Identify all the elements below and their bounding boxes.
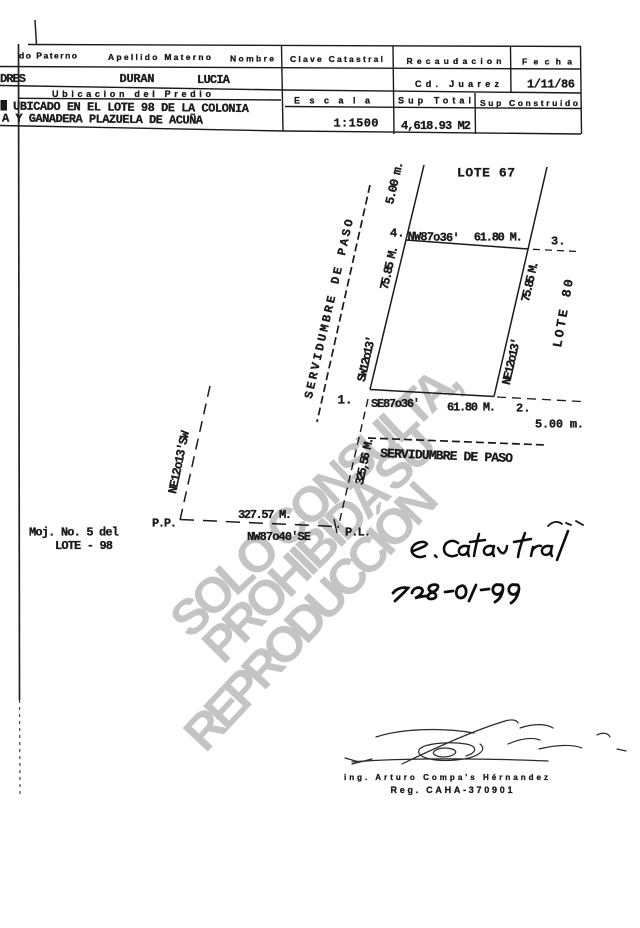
svg-text:Fecha: Fecha [522, 57, 572, 67]
svg-text:NE12o13': NE12o13' [500, 336, 524, 386]
svg-text:SERVIDUMBRE DE PASO: SERVIDUMBRE DE PASO [302, 217, 357, 400]
svg-text:5.00 m.: 5.00 m. [383, 160, 407, 206]
svg-text:do Paterno: do Paterno [19, 51, 77, 61]
svg-text:75.85 M.: 75.85 M. [519, 259, 542, 303]
svg-text:ing. Arturo Compa's Hérnandez: ing. Arturo Compa's Hérnandez [344, 773, 548, 782]
svg-text:1.: 1. [338, 394, 353, 408]
svg-text:Sup Construido: Sup Construido [480, 98, 578, 108]
svg-text:2.: 2. [516, 402, 530, 416]
svg-text:P.L.: P.L. [345, 526, 371, 540]
svg-text:Recaudacion: Recaudacion [407, 56, 502, 66]
svg-text:Sup Total: Sup Total [398, 96, 471, 106]
svg-text:SW12o13': SW12o13' [355, 334, 379, 383]
svg-text:1/11/86: 1/11/86 [527, 78, 575, 92]
svg-text:Clave Catastral: Clave Catastral [290, 54, 383, 64]
svg-text:DURAN: DURAN [120, 72, 155, 86]
svg-text:1:1500: 1:1500 [334, 117, 379, 131]
svg-text:3.: 3. [551, 235, 565, 249]
svg-text:SE87o36': SE87o36' [371, 397, 420, 411]
svg-text:DRES: DRES [0, 72, 26, 86]
svg-text:Cd. Juarez: Cd. Juarez [415, 79, 500, 89]
svg-text:NE12o13'SW: NE12o13'SW [166, 429, 193, 495]
svg-text:NW87o36': NW87o36' [407, 230, 459, 246]
svg-text:Escala: Escala [294, 96, 371, 106]
svg-text:75.85 M.: 75.85 M. [378, 244, 402, 291]
svg-text:61.80 M.: 61.80 M. [474, 231, 523, 245]
svg-text:A Y GANADERA PLAZUELA DE ACUÑA: A Y GANADERA PLAZUELA DE ACUÑA [2, 111, 204, 128]
svg-text:Nombre: Nombre [230, 54, 274, 64]
svg-text:NW87o40'SE: NW87o40'SE [247, 530, 311, 544]
svg-text:LOTE - 98: LOTE - 98 [55, 539, 113, 553]
svg-text:4.: 4. [390, 227, 404, 241]
svg-text:61.80 M.: 61.80 M. [447, 401, 496, 415]
svg-text:Moj. No. 5 del: Moj. No. 5 del [29, 526, 119, 540]
svg-text:5.00 m.: 5.00 m. [535, 418, 584, 432]
svg-text:Ubicacion del Predio: Ubicacion del Predio [52, 89, 212, 99]
svg-text:LOTE 67: LOTE 67 [457, 166, 515, 181]
svg-text:4,618.93 M2: 4,618.93 M2 [401, 119, 471, 133]
svg-text:LUCIA: LUCIA [197, 73, 231, 87]
svg-text:P.P.: P.P. [152, 517, 177, 531]
svg-text:327.57 M.: 327.57 M. [238, 508, 292, 522]
svg-text:LOTE 80: LOTE 80 [550, 278, 577, 349]
svg-text:Apellido Materno: Apellido Materno [108, 52, 211, 62]
svg-text:Reg. CAHA-370901: Reg. CAHA-370901 [391, 785, 513, 795]
